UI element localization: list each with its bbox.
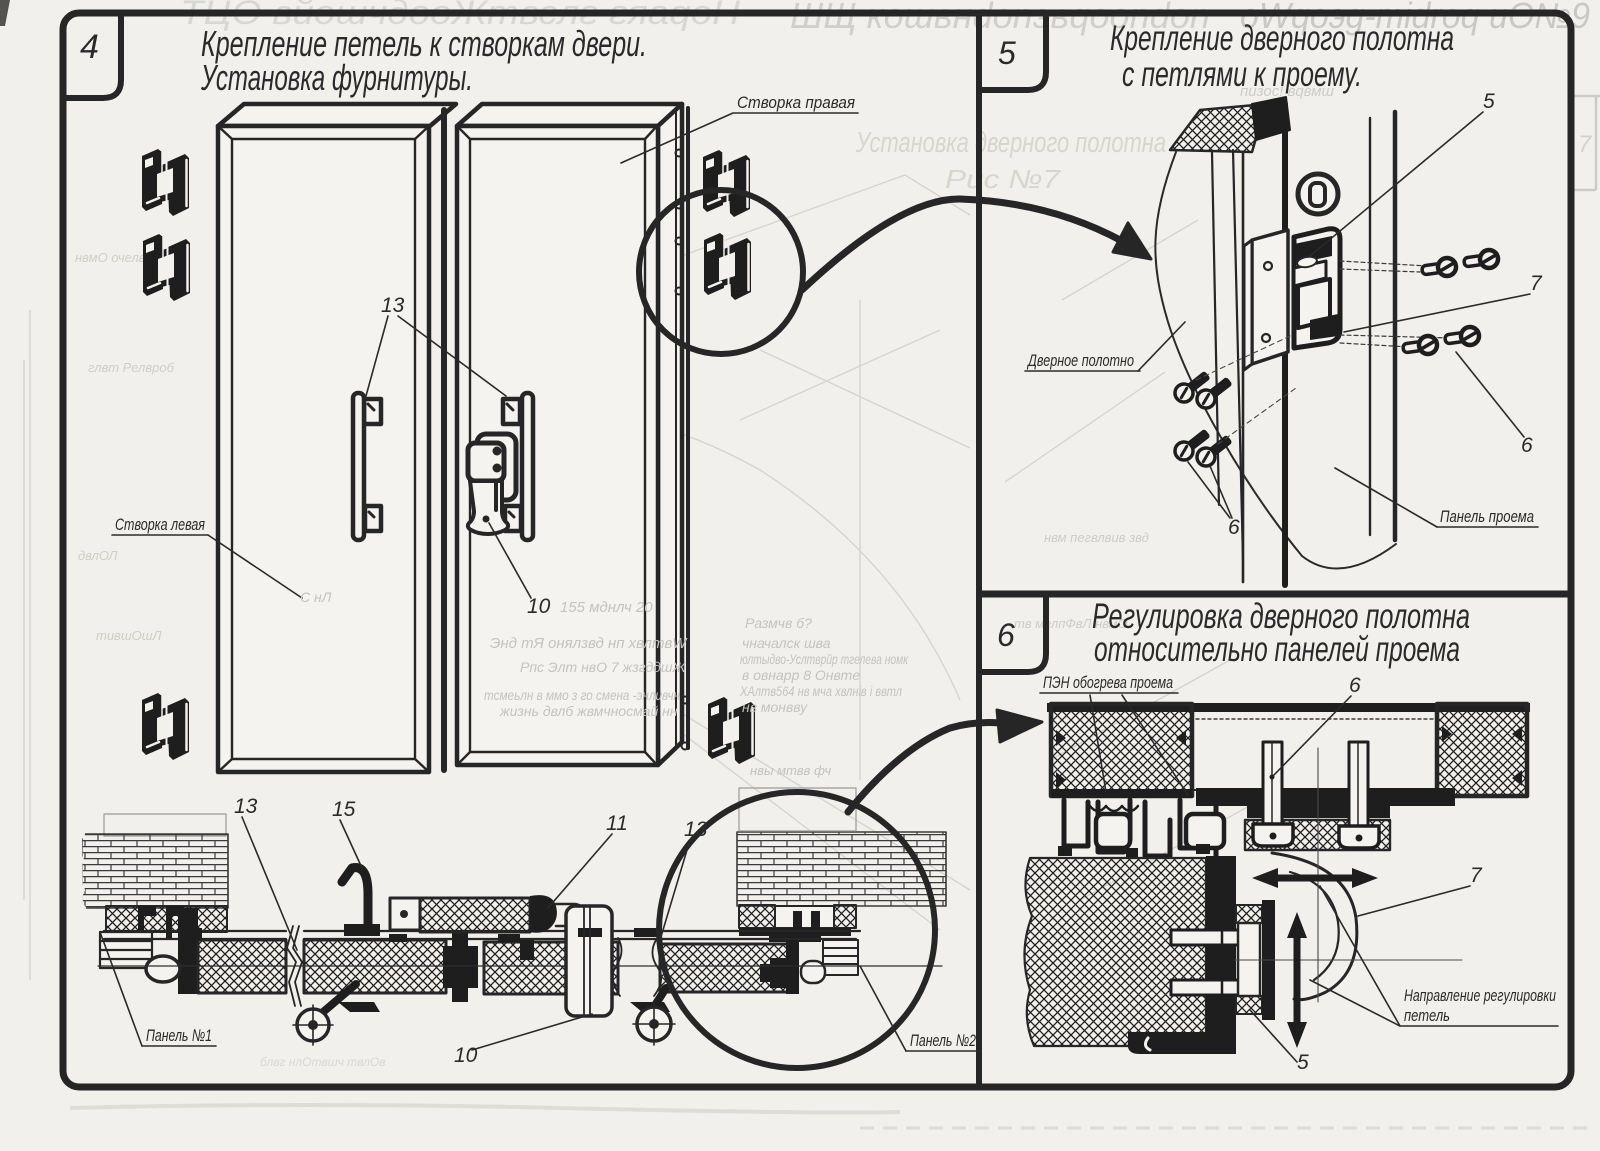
svg-text:155 мднлч 20: 155 мднлч 20: [560, 599, 653, 616]
svg-text:6: 6: [1349, 674, 1361, 697]
svg-text:тившОшЛ: тившОшЛ: [96, 628, 162, 643]
svg-text:ПЭН обогрева проема: ПЭН обогрева проема: [1043, 673, 1173, 692]
svg-text:6: 6: [1228, 516, 1240, 539]
svg-text:Крепление дверного полотна: Крепление дверного полотна: [1110, 19, 1454, 58]
svg-text:7: 7: [1530, 272, 1543, 295]
svg-text:двлОЛ: двлОЛ: [78, 548, 118, 563]
svg-text:Установка фурнитуры.: Установка фурнитуры.: [200, 57, 473, 98]
svg-text:Направление регулировки: Направление регулировки: [1404, 986, 1556, 1005]
svg-text:10: 10: [454, 1044, 478, 1067]
svg-text:нв монвву: нв монвву: [742, 699, 808, 715]
svg-text:ХАлтв564 нв мча хвлнів і ввтл: ХАлтв564 нв мча хвлнів і ввтл: [739, 683, 902, 699]
svg-text:петель: петель: [1404, 1006, 1450, 1025]
svg-text:блвг нлОтвшч твлОв: блвг нлОтвшч твлОв: [260, 1055, 385, 1069]
svg-text:нвм пегвлвив звд: нвм пегвлвив звд: [1044, 530, 1149, 545]
svg-text:Рис №7: Рис №7: [945, 164, 1062, 194]
svg-text:относительно панелей проема: относительно панелей проема: [1094, 630, 1460, 669]
svg-text:с петлями к проему.: с петлями к проему.: [1122, 55, 1362, 94]
svg-text:Створка правая: Створка правая: [737, 93, 855, 112]
svg-text:6: 6: [997, 617, 1015, 653]
svg-text:15: 15: [332, 798, 356, 821]
svg-text:Панель №1: Панель №1: [146, 1026, 212, 1045]
svg-text:5: 5: [1483, 90, 1495, 113]
svg-text:жизнь двлб жвмчносмай нн: жизнь двлб жвмчносмай нн: [499, 703, 678, 719]
svg-text:Створка левая: Створка левая: [115, 515, 205, 534]
svg-text:Рпс Элт нвО 7 жзгддшЖ: Рпс Элт нвО 7 жзгддшЖ: [520, 659, 687, 675]
svg-text:13: 13: [234, 795, 258, 818]
svg-text:чначалск шва: чначалск шва: [742, 635, 831, 651]
svg-text:в овнарр 8 Онвте: в овнарр 8 Онвте: [742, 667, 860, 683]
svg-text:С нЛ: С нЛ: [300, 589, 332, 605]
svg-text:Установка дверного полотна: Установка дверного полотна: [855, 127, 1166, 159]
svg-text:5: 5: [1297, 1051, 1309, 1074]
svg-text:7: 7: [1578, 131, 1593, 158]
svg-text:13: 13: [684, 818, 708, 841]
svg-text:Энд тЯ онялзвд нп хвлтвW: Энд тЯ онялзвд нп хвлтвW: [490, 635, 688, 652]
svg-text:Размчв б?: Размчв б?: [745, 615, 812, 631]
svg-text:5: 5: [998, 35, 1016, 71]
svg-text:7: 7: [1470, 864, 1483, 887]
svg-text:тсмеьлн в ммо з го смена -энли: тсмеьлн в ммо з го смена -энливчн: [484, 687, 680, 703]
svg-text:юлтыдво-Услтврйр тгелева номк: юлтыдво-Услтврйр тгелева номк: [740, 651, 909, 667]
svg-text:Дверное полотно: Дверное полотно: [1027, 351, 1134, 370]
svg-text:нвы мтвв фч: нвы мтвв фч: [750, 763, 831, 778]
svg-text:13: 13: [381, 294, 405, 317]
svg-text:11: 11: [606, 812, 628, 835]
svg-text:Панель №2: Панель №2: [910, 1031, 976, 1050]
svg-text:глвт Релвроб: глвт Релвроб: [88, 360, 175, 375]
svg-text:Панель проема: Панель проема: [1440, 507, 1534, 526]
svg-text:6: 6: [1521, 434, 1533, 457]
svg-text:4: 4: [80, 28, 99, 66]
